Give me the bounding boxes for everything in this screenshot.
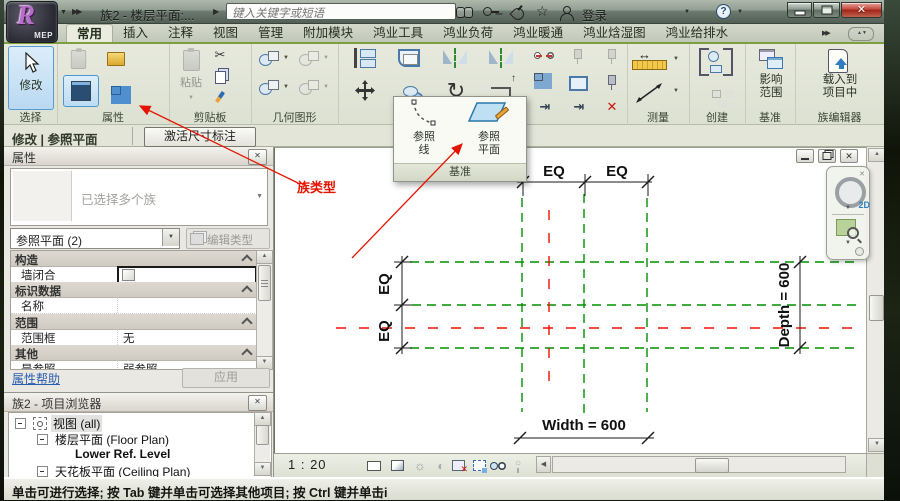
project-browser-close-button[interactable]: ✕ (248, 395, 267, 411)
offset-icon[interactable] (397, 47, 423, 71)
ribbon-accent-line (4, 42, 884, 44)
trim-extend-icon[interactable] (534, 99, 556, 115)
crop-view-icon[interactable] (450, 458, 466, 473)
type-selector[interactable]: 已选择多个族 ▼ (10, 168, 268, 226)
aligned-dimension-icon[interactable] (632, 80, 666, 106)
similar-glyph (712, 90, 721, 98)
horizontal-scrollbar[interactable] (552, 456, 846, 473)
modify-button-label: 修改 (9, 77, 53, 93)
tab-hongye-tools[interactable]: 鸿业工具 (363, 24, 433, 42)
maximize-button[interactable] (813, 2, 840, 18)
family-category-icon[interactable] (103, 48, 129, 70)
apply-button[interactable]: 应用 (182, 368, 270, 388)
eq-label-top-1[interactable]: EQ (543, 163, 565, 180)
prop-label: 是参照 (21, 361, 56, 370)
move-icon[interactable] (352, 77, 378, 105)
panel-create-label: 创建 (689, 109, 745, 125)
panel-properties-label: 属性 (57, 109, 169, 125)
create-group-icon[interactable] (699, 48, 733, 76)
palette-glyph (70, 50, 85, 69)
measure-tape-icon[interactable] (632, 52, 666, 72)
tab-insert[interactable]: 插入 (113, 24, 158, 42)
detail-level-icon[interactable] (366, 458, 382, 473)
mirror-axis-glyph (454, 48, 456, 68)
project-browser: 族2 - 项目浏览器 ✕ 视图 (all) 楼层平面 (Floor Plan) … (4, 392, 274, 477)
zoom-caret-icon[interactable]: ▼ (845, 240, 851, 246)
tree-item-lower-ref-level[interactable]: Lower Ref. Level (9, 447, 271, 463)
scroll-up-icon[interactable]: ▲ (256, 250, 273, 264)
datum-flyout-footer: 基准 (394, 163, 526, 181)
ribbon-tabs: 常用 插入 注释 视图 管理 附加模块 鸿业工具 鸿业负荷 鸿业暖通 鸿业焓湿图… (66, 24, 738, 42)
status-bar: 单击可进行选择; 按 Tab 键并单击可选择其他项目; 按 Ctrl 键并单击i (4, 477, 884, 500)
prop-value[interactable]: 无 (123, 330, 135, 346)
panel-datum-label: 基准 (745, 109, 795, 125)
activate-dimensions-button[interactable]: 激活尺寸标注 (144, 127, 256, 147)
section-other[interactable]: 其他 (11, 345, 257, 361)
cut-icon[interactable] (211, 46, 229, 64)
width-dimension-label[interactable]: Width = 600 (542, 417, 626, 434)
scrollbar-corner (866, 453, 884, 477)
row-wall-closure[interactable]: 墙闭合 (11, 266, 257, 283)
zoom-tool-icon[interactable] (836, 219, 856, 236)
collapse-box-icon[interactable] (37, 466, 48, 477)
join-geometry-icon[interactable] (259, 80, 279, 95)
pin-outline-icon[interactable] (602, 73, 622, 91)
steering-wheel-icon[interactable]: 2D (835, 177, 866, 208)
mirror-draw-axis-icon[interactable] (489, 47, 515, 71)
reference-line-label-2: 线 (419, 144, 430, 156)
edit-type-label: 编辑类型 (207, 232, 253, 248)
paint-geometry-icon[interactable] (299, 51, 319, 66)
desktop-edge-right (884, 0, 900, 500)
panel-family-editor-label: 族编辑器 (795, 109, 884, 125)
panel-select: 修改 选择 (4, 44, 58, 125)
panel-create: 创建 (689, 44, 746, 125)
arrow-stem-glyph (839, 62, 844, 69)
prop-label: 墙闭合 (21, 267, 56, 283)
user-icon[interactable] (558, 4, 576, 20)
filter-combo-caret-icon[interactable]: ▼ (162, 229, 179, 246)
element-filter-combo[interactable]: 参照平面 (2) ▼ (10, 228, 180, 249)
measure-caret-icon[interactable] (673, 56, 679, 62)
family-types-grid-icon (111, 86, 121, 95)
view-restore-button[interactable] (818, 149, 836, 163)
aligned-dim-glyph (634, 81, 664, 105)
qat-overflow-icon[interactable]: ▶▶ (72, 7, 80, 16)
align-icon[interactable] (352, 47, 378, 71)
properties-header[interactable]: 属性 ✕ (4, 147, 273, 166)
cell-divider (117, 329, 118, 345)
array-icon[interactable] (534, 73, 552, 89)
filter-combo-text: 参照平面 (2) (16, 232, 82, 249)
maximize-icon (821, 6, 832, 15)
scope-label-line2: 范围 (749, 87, 793, 100)
prop-value[interactable]: 弱参照 (123, 361, 158, 370)
view-close-button[interactable]: ✕ (840, 149, 858, 163)
prop-label: 范围框 (21, 330, 56, 346)
properties-palette-icon[interactable] (65, 48, 91, 70)
panel-properties: 属性 (57, 44, 170, 125)
tab-hongye-hvac[interactable]: 鸿业暖通 (503, 24, 573, 42)
family-types-button[interactable] (103, 78, 129, 102)
paint-caret-icon[interactable] (323, 55, 329, 61)
temporary-hide-isolate-icon[interactable] (490, 458, 506, 473)
scope-label-line1: 影响 (749, 74, 793, 87)
window-title: 族2 - 楼层平面:... (100, 5, 194, 24)
project-browser-tree: 视图 (all) 楼层平面 (Floor Plan) Lower Ref. Le… (8, 412, 272, 478)
view-scale[interactable]: 1 : 20 (288, 457, 327, 472)
visual-style-icon[interactable] (389, 458, 405, 473)
title-bar: ▼ ▶▶ 族2 - 楼层平面:... ▶ 登录 ▼ ? ▼ ✕ (4, 0, 884, 24)
navbar-close-icon[interactable] (859, 170, 865, 178)
type-selector-caret-icon[interactable]: ▼ (256, 193, 263, 200)
modify-button[interactable]: 修改 (8, 46, 54, 110)
navbar-handle-icon[interactable] (855, 247, 864, 256)
views-icon (33, 417, 47, 430)
view-restore-icon (823, 152, 832, 160)
help-icon[interactable]: ? (716, 4, 731, 19)
paste-icon (183, 50, 200, 71)
create-similar-icon[interactable] (699, 82, 733, 106)
tree-label[interactable]: 天花板平面 (Ceiling Plan) (55, 463, 190, 478)
reference-plane-label-1: 参照 (478, 131, 500, 143)
tree-label[interactable]: 视图 (all) (51, 415, 102, 432)
close-x-icon: ✕ (254, 397, 261, 406)
sun-path-icon[interactable] (412, 458, 428, 473)
panel-geometry: 几何图形 (251, 44, 339, 125)
close-button[interactable]: ✕ (841, 2, 882, 18)
panel-measure: 测量 (627, 44, 690, 125)
status-message: 单击可进行选择; 按 Tab 键并单击可选择其他项目; 按 Ctrl 键并单击i (12, 482, 387, 501)
panel-geometry-label: 几何图形 (251, 109, 338, 125)
scale-icon[interactable] (568, 73, 588, 91)
load-label-line2: 项目中 (812, 87, 868, 100)
depth-dimension-label[interactable]: Depth = 600 (776, 263, 793, 348)
view-minimize-icon (801, 158, 809, 160)
edit-type-button[interactable]: 编辑类型 (186, 228, 270, 249)
collapse-chevron-icon[interactable] (241, 348, 252, 359)
reference-plane-label-2: 平面 (478, 144, 500, 156)
demolish-caret-icon[interactable] (323, 84, 329, 90)
help-caret-icon[interactable]: ▼ (737, 9, 743, 15)
paste-label: 粘贴 (175, 74, 207, 90)
properties-title: 属性 (12, 149, 36, 166)
paste-caret-icon (188, 90, 194, 102)
panel-measure-label: 测量 (627, 109, 689, 125)
scroll-left-icon[interactable]: ◀ (536, 456, 551, 473)
unpin-icon[interactable] (568, 47, 588, 65)
panel-clipboard-label: 剪贴板 (169, 109, 251, 125)
mep-logo-label: MEP (34, 31, 53, 40)
row-name[interactable]: 名称 (11, 297, 257, 314)
communication-center-icon[interactable] (510, 4, 528, 20)
row-scope-box[interactable]: 范围框无 (11, 329, 257, 346)
project-browser-header[interactable]: 族2 - 项目浏览器 ✕ (4, 393, 273, 412)
reference-plane-button[interactable]: 参照 平面 (456, 99, 522, 157)
collapse-chevron-icon[interactable] (241, 317, 252, 328)
revit-logo: R (17, 0, 35, 31)
sign-in-button[interactable]: 登录 (582, 5, 607, 24)
panel-clipboard: 粘贴 剪贴板 (169, 44, 252, 125)
pin-icon[interactable] (602, 47, 622, 65)
load-label-line1: 载入到 (812, 74, 868, 87)
wheel-2d-label: 2D (858, 200, 870, 210)
load-into-project-icon (828, 48, 854, 74)
property-grid: 构造 墙闭合 标识数据 名称 范围 范围框无 其他 是参照弱参照 (10, 250, 258, 370)
show-crop-region-icon[interactable] (471, 458, 487, 473)
tab-addins[interactable]: 附加模块 (293, 24, 363, 42)
section-identity-data[interactable]: 标识数据 (11, 282, 257, 298)
scope-button[interactable]: 影响 范围 (748, 45, 794, 111)
dimension-lines[interactable] (394, 174, 806, 444)
copy-icon[interactable] (211, 68, 229, 86)
scrollbar-thumb[interactable] (256, 425, 269, 445)
edit-type-icon (190, 233, 204, 245)
desktop-edge-left (0, 0, 4, 500)
reference-line-label-1: 参照 (413, 131, 435, 143)
close-x-icon: ✕ (254, 151, 261, 160)
navbar-divider (832, 214, 864, 215)
tree-scrollbar[interactable]: ▲ ▼ (254, 412, 270, 476)
properties-button[interactable] (63, 75, 99, 107)
join-geometry-caret-icon[interactable] (283, 84, 289, 90)
scope-icon (759, 49, 783, 69)
collapse-box-icon[interactable] (15, 418, 26, 429)
view-minimize-button[interactable] (796, 149, 814, 163)
trim-extend-multi-icon[interactable] (568, 99, 590, 115)
split-element-icon[interactable] (534, 48, 556, 64)
panel-family-editor: 载入到 项目中 族编辑器 (795, 44, 884, 125)
cell-divider (117, 360, 118, 370)
scroll-down-icon[interactable]: ▼ (254, 462, 271, 476)
tab-hongye-load[interactable]: 鸿业负荷 (433, 24, 503, 42)
eq-label-top-2[interactable]: EQ (606, 163, 628, 180)
tab-hongye-psychrometric[interactable]: 鸿业焓湿图 (573, 24, 656, 42)
horizontal-scroll-thumb[interactable] (695, 458, 729, 473)
search-input[interactable] (227, 7, 455, 22)
subscription-key-icon[interactable] (482, 4, 500, 20)
folder-glyph (107, 52, 125, 66)
section-extents[interactable]: 范围 (11, 314, 257, 330)
options-separator (132, 127, 133, 145)
copy-tool-glyph (403, 86, 418, 97)
cut-geometry-caret-icon[interactable] (283, 55, 289, 61)
tree-item-views[interactable]: 视图 (all) (9, 415, 271, 431)
tab-annotate[interactable]: 注释 (158, 24, 203, 42)
family-type-annotation: 族类型 (297, 177, 336, 196)
panel-select-label: 选择 (4, 109, 57, 125)
app-menu-caret-icon[interactable]: ▼ (60, 9, 67, 16)
collapse-chevron-icon[interactable] (241, 285, 252, 296)
collapse-chevron-icon[interactable] (241, 254, 252, 265)
properties-close-button[interactable]: ✕ (248, 149, 267, 165)
scrollbar-thumb[interactable] (258, 265, 271, 301)
ribbon-minimize-button[interactable]: ▲▼ (848, 27, 874, 41)
tab-overflow-icon[interactable]: ▶▶ (822, 29, 829, 37)
group-circle-glyph (708, 51, 719, 62)
properties-palette: 属性 ✕ 已选择多个族 ▼ 参照平面 (2) ▼ 编辑类型 构造 墙闭合 标识数… (4, 147, 274, 392)
scroll-up-icon[interactable]: ▲ (254, 412, 271, 426)
project-browser-title: 族2 - 项目浏览器 (12, 395, 101, 412)
mirror-axis-glyph2 (500, 48, 502, 68)
shadows-icon[interactable] (433, 458, 449, 473)
mirror-pick-axis-icon[interactable] (443, 47, 469, 71)
tree-item-floor-plan[interactable]: 楼层平面 (Floor Plan) (9, 431, 271, 447)
minimize-icon (794, 11, 805, 16)
delete-icon[interactable] (602, 99, 622, 115)
navigation-bar: 2D ▼ ▼ (826, 166, 870, 260)
minimize-button[interactable] (787, 2, 812, 18)
section-construction[interactable]: 构造 (11, 251, 257, 267)
paste-button[interactable]: 粘贴 (174, 46, 208, 110)
search-box (226, 3, 456, 20)
mode-label: 修改 | 参照平面 (12, 129, 97, 148)
signin-caret-icon[interactable]: ▼ (684, 9, 690, 15)
search-binoculars-icon[interactable] (456, 4, 474, 20)
ribbon-minimize-caret-icon: ▲▼ (857, 30, 867, 36)
reveal-hidden-elements-icon[interactable] (510, 458, 526, 473)
eq-label-left-2[interactable]: EQ (376, 320, 393, 342)
cursor-icon (22, 52, 40, 74)
tree-label[interactable]: Lower Ref. Level (75, 447, 170, 461)
tab-view[interactable]: 视图 (203, 24, 248, 42)
tab-manage[interactable]: 管理 (248, 24, 293, 42)
tree-item-ceiling-plan[interactable]: 天花板平面 (Ceiling Plan) (9, 463, 271, 478)
ribbon-tab-bar: 常用 插入 注释 视图 管理 附加模块 鸿业工具 鸿业负荷 鸿业暖通 鸿业焓湿图… (4, 24, 884, 42)
family-drawing[interactable]: EQ EQ EQ EQ Width = 600 Depth = 600 (274, 147, 866, 453)
title-expand-icon[interactable]: ▶ (213, 7, 219, 16)
cut-geometry-icon[interactable] (259, 51, 279, 66)
favorites-star-icon[interactable] (534, 4, 552, 20)
vertical-scroll-thumb[interactable] (869, 295, 884, 321)
eq-label-left-1[interactable]: EQ (376, 273, 393, 295)
wheel-caret-icon[interactable]: ▼ (845, 205, 851, 211)
tree-label[interactable]: 楼层平面 (Floor Plan) (55, 431, 169, 448)
match-type-brush-icon[interactable] (211, 88, 229, 106)
collapse-box-icon[interactable] (37, 434, 48, 445)
type-selector-text: 已选择多个族 (81, 189, 156, 208)
copy-glyph (215, 71, 226, 84)
reference-line-button[interactable]: 参照 线 (398, 99, 450, 157)
application-menu-button[interactable]: R MEP (6, 1, 58, 43)
demolish-geometry-icon[interactable] (299, 80, 319, 95)
property-grid-scrollbar[interactable]: ▲ ▼ (256, 250, 273, 370)
type-preview-image (13, 171, 72, 221)
tab-home[interactable]: 常用 (66, 24, 113, 43)
reference-plane-icon (467, 99, 511, 127)
panel-datum: 影响 范围 基准 (745, 44, 796, 125)
move-glyph (353, 79, 377, 103)
dimension-caret-icon[interactable] (673, 88, 679, 94)
prop-label: 名称 (21, 298, 44, 314)
group-rect-glyph (710, 65, 722, 73)
cell-divider (117, 297, 118, 313)
properties-help-link[interactable]: 属性帮助 (12, 370, 60, 387)
tab-hongye-plumbing[interactable]: 鸿业给排水 (656, 24, 739, 42)
reference-line-icon (409, 99, 439, 127)
brush-glyph (215, 91, 225, 103)
properties-glyph (71, 81, 91, 101)
datum-flyout-panel: 参照 线 参照 平面 基准 (393, 96, 527, 182)
thumb-grip (261, 280, 268, 287)
wall-closure-checkbox[interactable] (122, 269, 135, 281)
load-into-project-button[interactable]: 载入到 项目中 (811, 45, 869, 111)
